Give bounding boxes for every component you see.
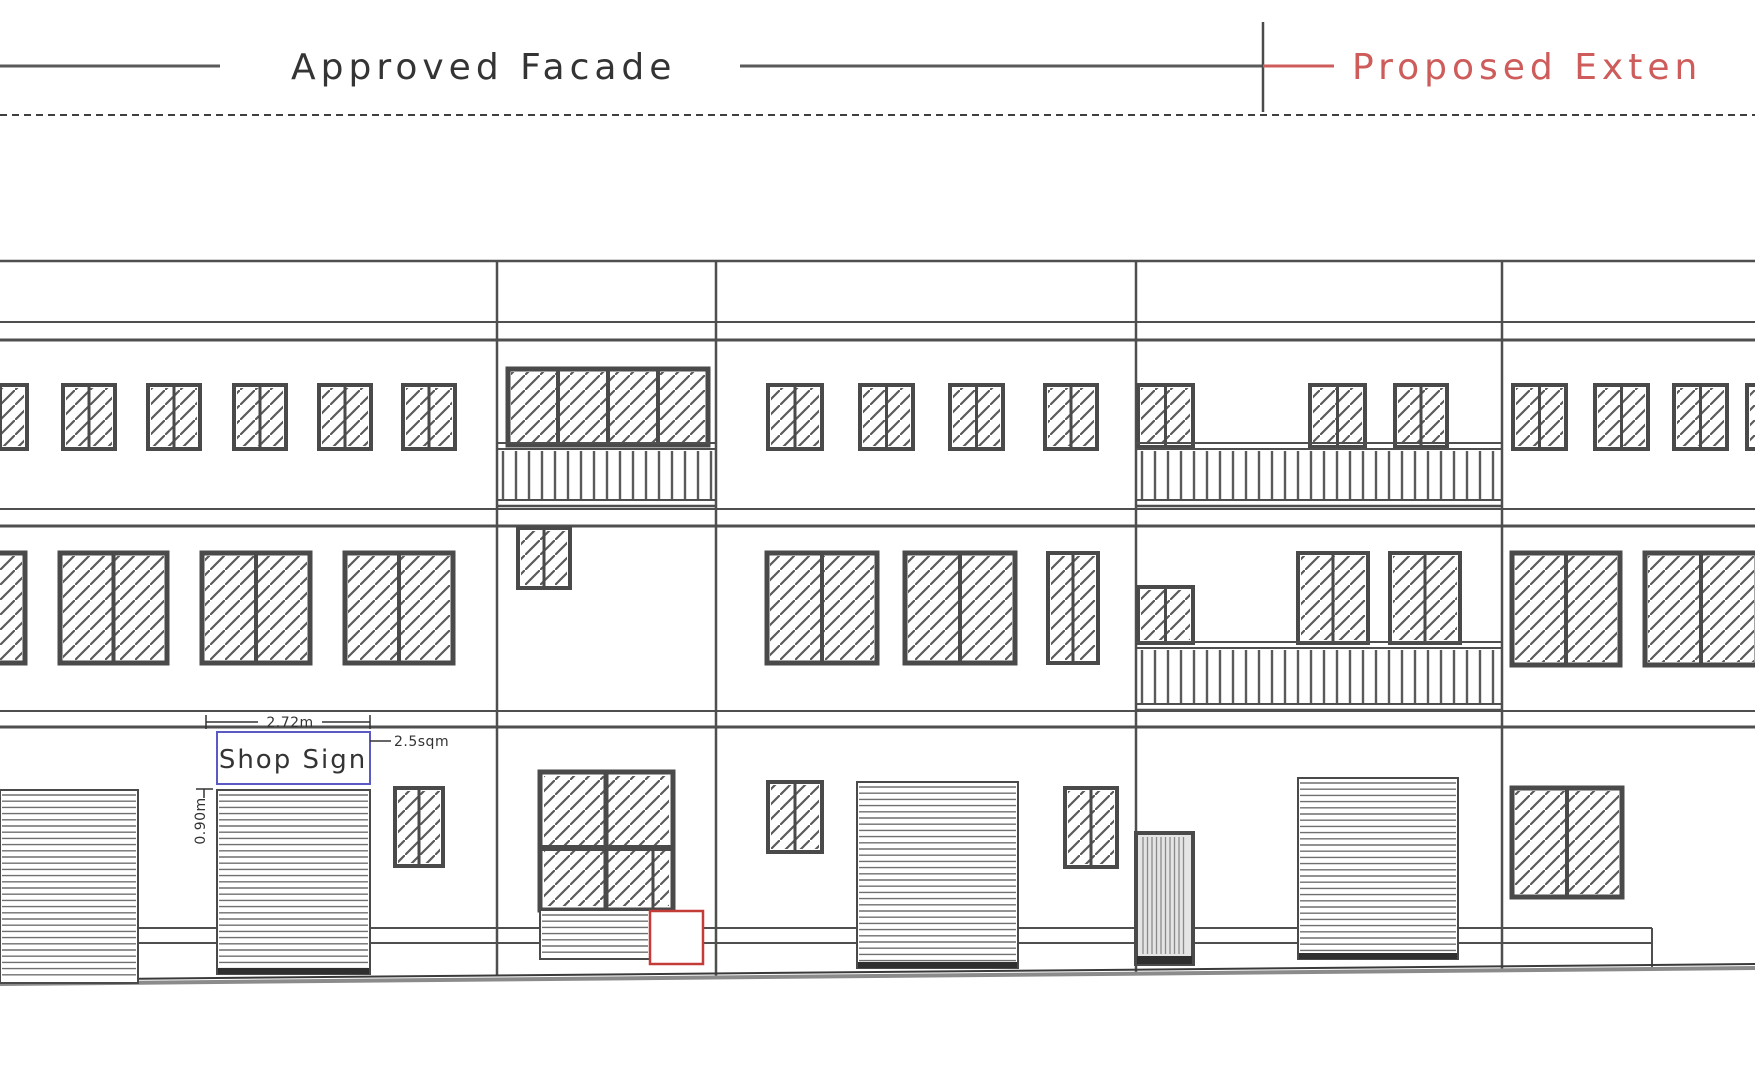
window (1138, 385, 1193, 447)
window (1045, 385, 1097, 449)
facade-elevation-drawing: Approved Facade Proposed Exten Shop Sign… (0, 0, 1755, 1080)
window (1674, 385, 1727, 449)
shutter-frame (0, 790, 138, 983)
window-glazing-hatch (1750, 388, 1755, 446)
window (60, 553, 167, 663)
garage-roller-shutter (857, 782, 1018, 968)
shutter-bottom-bar (1299, 953, 1457, 959)
window (1310, 385, 1365, 447)
window-glazing-hatch (0, 388, 24, 446)
window (768, 782, 822, 852)
window (1298, 553, 1368, 643)
window (63, 385, 115, 449)
window (950, 385, 1003, 449)
proposed-extension-outline (650, 911, 703, 964)
balcony-railing (1136, 443, 1502, 506)
door-frame (1136, 833, 1193, 964)
window (1512, 788, 1622, 897)
legend-proposed-label: Proposed Exten (1352, 47, 1702, 88)
window (905, 553, 1015, 663)
shutter-frame (857, 782, 1018, 968)
window (1747, 385, 1755, 449)
window (768, 385, 822, 449)
window (1513, 385, 1566, 449)
window (234, 385, 286, 449)
window (0, 553, 25, 663)
shutter-bottom-bar (218, 968, 369, 974)
sign-area-dimension: 2.5sqm (394, 734, 449, 750)
shop-sign-label: Shop Sign (219, 745, 367, 775)
window-glazing-hatch (0, 556, 22, 660)
window (1512, 553, 1620, 665)
window (319, 385, 371, 449)
shopfront-roller-shutter (540, 910, 650, 959)
sign-width-dimension: 2.72m (266, 715, 313, 731)
window (148, 385, 200, 449)
window (860, 385, 913, 449)
window (395, 788, 443, 866)
legend-approved-label: Approved Facade (291, 47, 676, 88)
balcony-railing (1136, 642, 1502, 710)
window (508, 369, 708, 445)
window (1645, 553, 1755, 665)
window (403, 385, 455, 449)
facade-geometry (0, 22, 1755, 984)
proposed-extension-box (650, 911, 703, 964)
garage-roller-shutter (217, 790, 370, 974)
elevation-sheet: Approved Facade Proposed Exten Shop Sign… (0, 0, 1755, 1080)
door-threshold (1137, 956, 1192, 964)
garage-roller-shutter (1298, 778, 1458, 959)
window (518, 528, 570, 588)
sign-height-dimension: 0.90m (193, 797, 209, 844)
shopfront (540, 772, 673, 910)
window (767, 553, 877, 663)
window (0, 385, 27, 449)
window (1048, 553, 1098, 663)
window (1395, 385, 1447, 447)
balcony-railing (497, 443, 716, 506)
window (202, 553, 310, 663)
garage-roller-shutter (0, 790, 138, 983)
window (1595, 385, 1648, 449)
window (345, 553, 453, 663)
window (1390, 553, 1460, 643)
window (1138, 587, 1193, 643)
shutter-bottom-bar (858, 962, 1017, 968)
entrance-door (1136, 833, 1193, 964)
window (1065, 788, 1117, 867)
